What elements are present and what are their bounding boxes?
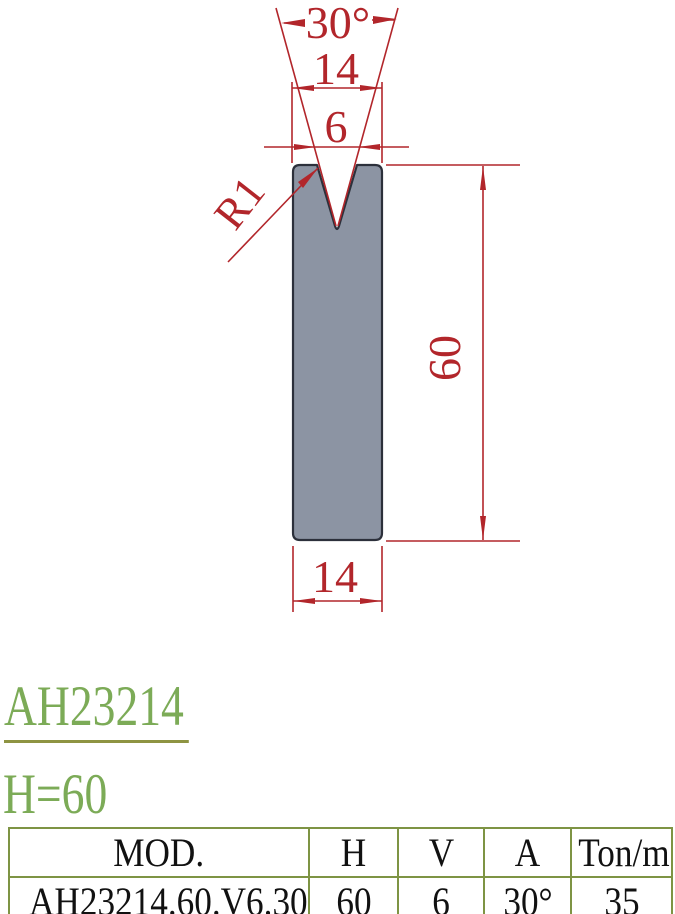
- cell-tonm: 35: [571, 877, 672, 914]
- radius-value: R1: [204, 168, 274, 239]
- page: 30° 14 6 R1: [0, 0, 675, 914]
- spec-table: MOD. H V A Ton/m AH23214.60.V6.30 60 6 3…: [8, 827, 673, 914]
- col-header-v: V: [398, 828, 484, 877]
- technical-drawing: 30° 14 6 R1: [0, 0, 675, 660]
- cell-mod: AH23214.60.V6.30: [9, 877, 309, 914]
- top-width-value: 14: [313, 43, 359, 94]
- model-title: AH23214: [4, 678, 189, 743]
- model-title-text: AH23214: [4, 678, 189, 743]
- dim-height-60: 60: [386, 165, 520, 541]
- vee-opening-value: 6: [325, 101, 348, 152]
- col-header-mod: MOD.: [9, 828, 309, 877]
- dim-bottom-width-14: 14: [293, 546, 382, 612]
- dim-angle-30: 30°: [281, 0, 397, 48]
- angle-value: 30°: [306, 0, 370, 48]
- arrowhead: [360, 85, 382, 91]
- col-header-h: H: [309, 828, 398, 877]
- arrowhead: [480, 516, 486, 540]
- arrowhead: [294, 144, 316, 150]
- cell-h: 60: [309, 877, 398, 914]
- col-header-a: A: [484, 828, 571, 877]
- arrowhead: [358, 144, 380, 150]
- die-profile: [293, 165, 382, 540]
- spec-data-row: AH23214.60.V6.30 60 6 30° 35: [9, 877, 672, 914]
- spec-header-row: MOD. H V A Ton/m: [9, 828, 672, 877]
- arrowhead: [292, 85, 314, 91]
- dim-vee-opening-6: 6: [264, 101, 409, 152]
- cell-a: 30°: [484, 877, 571, 914]
- col-header-tonm: Ton/m: [571, 828, 672, 877]
- arrowhead: [480, 166, 486, 190]
- height-value: 60: [419, 335, 470, 381]
- arrowhead: [360, 598, 382, 604]
- bottom-width-value: 14: [312, 551, 358, 602]
- cell-v: 6: [398, 877, 484, 914]
- height-title: H=60: [3, 766, 107, 823]
- angle-arrow-left: [281, 19, 305, 27]
